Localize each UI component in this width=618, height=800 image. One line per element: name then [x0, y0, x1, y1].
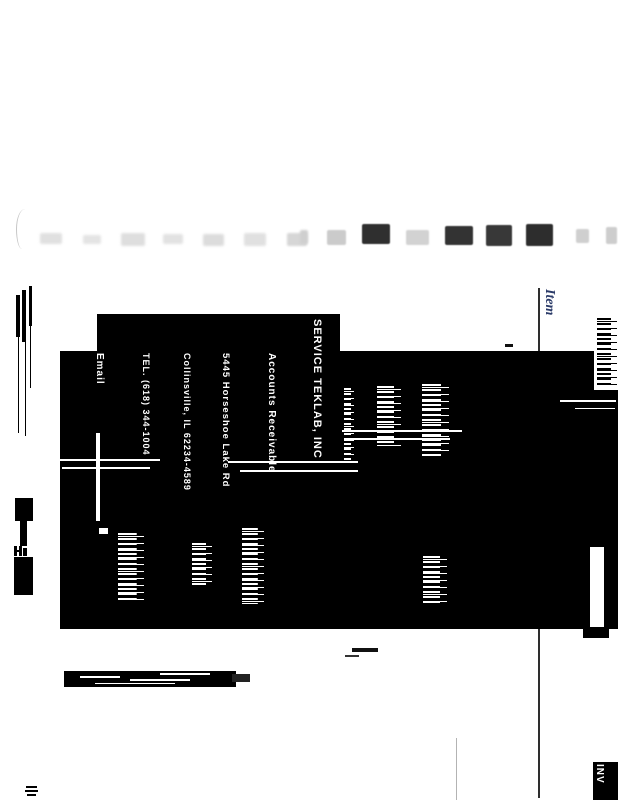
- scan-smudge-artifact: [244, 233, 266, 246]
- scan-bar-artifact: [16, 295, 20, 337]
- scan-bar-artifact: [25, 790, 38, 792]
- scan-bar-artifact: [583, 629, 609, 638]
- scan-bar-artifact: [80, 676, 120, 678]
- scan-bar-artifact: [29, 580, 33, 590]
- scan-bar-artifact: [20, 521, 27, 546]
- scan-bar-artifact: [23, 548, 27, 556]
- scan-bar-artifact: [96, 433, 100, 521]
- scan-bar-artifact: [15, 550, 22, 552]
- scan-bar-artifact: [27, 794, 36, 796]
- scan-bar-artifact: [29, 286, 32, 326]
- illegible-text-noise: [242, 528, 264, 604]
- remit-department: Accounts Receivable: [266, 353, 277, 453]
- scan-bar-artifact: [95, 683, 175, 684]
- scan-bar-artifact: [99, 528, 108, 534]
- scan-bar-artifact: [15, 498, 33, 521]
- scan-arc-artifact: [16, 209, 31, 249]
- scan-bar-artifact: [232, 674, 250, 682]
- item-column-rule-top: [538, 288, 540, 351]
- scan-smudge-artifact: [83, 235, 101, 244]
- scan-smudge-artifact: [362, 224, 390, 244]
- illegible-text-noise: [118, 533, 144, 603]
- remit-phone: TEL. (618) 344-1004: [141, 353, 151, 433]
- remit-email-label: Email: [94, 353, 105, 387]
- illegible-text-noise: [344, 388, 354, 460]
- fold-line-faint: [456, 738, 457, 800]
- scan-bar-artifact: [240, 470, 358, 472]
- scan-bar-artifact: [352, 648, 378, 652]
- illegible-text-noise: [423, 556, 447, 604]
- scanned-invoice-page: SERVICE TEKLAB, INC Accounts Receivable …: [0, 0, 618, 800]
- scan-bar-artifact: [505, 344, 513, 347]
- scan-smudge-artifact: [327, 230, 346, 245]
- scan-smudge-artifact: [300, 230, 308, 244]
- scan-smudge-artifact: [445, 226, 473, 245]
- remit-street-address: 5445 Horseshoe Lake Rd: [220, 353, 231, 453]
- illegible-text-noise: [192, 543, 212, 585]
- remit-company-name: SERVICE TEKLAB, INC: [311, 319, 323, 431]
- scan-bar-artifact: [345, 655, 359, 657]
- invoice-stub-label: INV: [594, 764, 605, 800]
- scan-bar-artifact: [18, 337, 19, 433]
- scan-bar-artifact: [130, 679, 190, 681]
- illegible-text-noise: [422, 384, 449, 456]
- item-column-label: Item: [541, 289, 557, 339]
- illegible-text-noise: [597, 318, 617, 386]
- scan-white-patch: [590, 547, 604, 627]
- scan-bar-artifact: [26, 786, 37, 788]
- item-column-rule-bottom: [538, 629, 540, 798]
- scan-smudge-artifact: [203, 234, 224, 246]
- scan-bar-artifact: [160, 673, 210, 675]
- scan-bar-artifact: [560, 400, 616, 402]
- scan-bar-artifact: [25, 342, 26, 436]
- scan-smudge-artifact: [526, 224, 553, 246]
- scan-smudge-artifact: [163, 234, 183, 244]
- invoice-stub-box: INV: [593, 762, 618, 800]
- scan-bar-artifact: [575, 408, 615, 409]
- scan-bar-artifact: [228, 461, 358, 463]
- scan-smudge-artifact: [406, 230, 429, 245]
- scan-bar-artifact: [30, 326, 31, 388]
- scan-smudge-artifact: [606, 227, 617, 244]
- scan-smudge-artifact: [576, 229, 589, 243]
- remit-city-line: Collinsville, IL 62234-4589: [182, 353, 192, 463]
- scan-bar-artifact: [62, 467, 150, 469]
- scan-smudge-artifact: [40, 233, 62, 244]
- scan-smudge-artifact: [121, 233, 145, 246]
- scan-bar-artifact: [60, 459, 160, 461]
- scan-bar-artifact: [22, 290, 26, 342]
- inverted-scan-block-step: [97, 314, 340, 354]
- illegible-text-noise: [377, 386, 401, 446]
- scan-smudge-artifact: [486, 225, 512, 246]
